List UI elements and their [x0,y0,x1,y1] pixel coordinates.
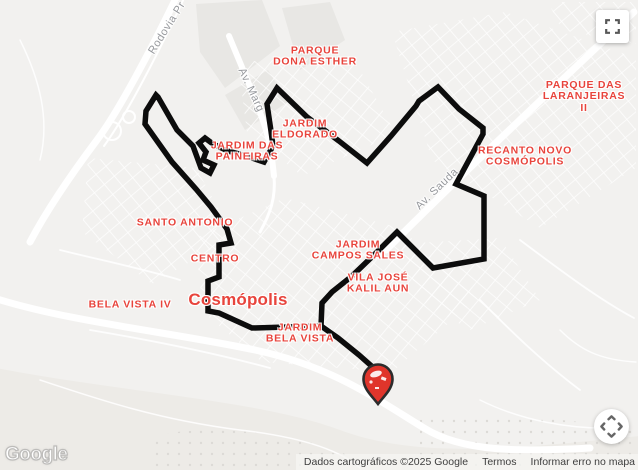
attribution-copyright: Dados cartográficos ©2025 Google [304,456,468,468]
pan-arrows-icon [600,415,623,438]
report-map-error-link[interactable]: Informar erro no mapa [531,456,635,468]
terms-link[interactable]: Termos [482,456,516,468]
map-canvas [0,0,638,470]
pan-control[interactable] [594,409,629,444]
fullscreen-icon [605,19,620,34]
map-viewport[interactable]: PARQUE DONA ESTHER JARDIM ELDORADO JARDI… [0,0,638,470]
fullscreen-button[interactable] [596,10,629,43]
attribution-bar: Dados cartográficos ©2025 Google Termos … [296,454,638,470]
google-logo[interactable]: Google [5,444,67,466]
map-terrain [0,0,638,470]
